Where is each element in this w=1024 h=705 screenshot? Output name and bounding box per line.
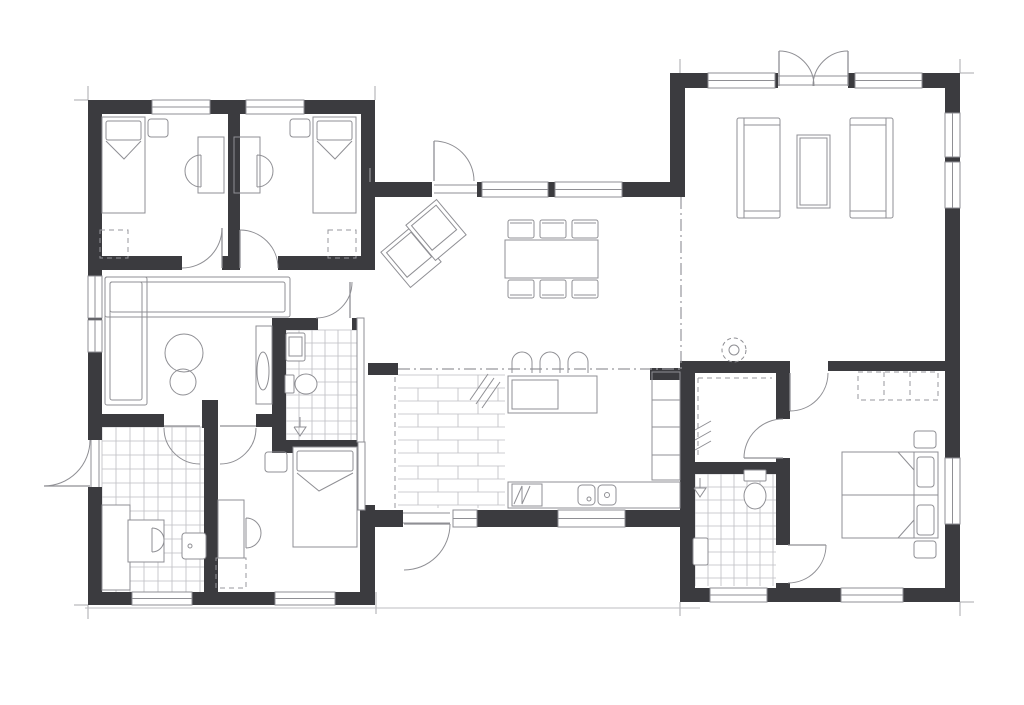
bathroom1-toilet-tank	[285, 375, 294, 393]
window-entry-sidelight-window	[453, 510, 477, 527]
bathroom2-toilet-tank	[744, 470, 766, 481]
window-utility-window	[132, 592, 192, 605]
room-living-room	[685, 88, 945, 368]
wall-east-wall-seg-2	[945, 208, 960, 458]
wall-bedroom3-top-stub	[256, 414, 274, 427]
wall-east-wall-seg-1	[945, 73, 960, 113]
utility-sink	[182, 533, 206, 559]
window-living-room-window-north-1	[708, 73, 775, 88]
wall-east-wing-top-wall-1	[680, 73, 708, 88]
thin-wall-bathroom1-east-wall	[357, 318, 364, 442]
wall-center-top-wall-1	[370, 182, 432, 197]
wall-left-wall-lower	[88, 487, 102, 605]
utility-counter	[102, 505, 130, 590]
wall-top-wall-west-wing	[88, 100, 375, 114]
window-bedroom2-window	[246, 100, 304, 114]
wall-utility-top-wall	[98, 414, 164, 427]
wall-center-bottom-wall-3	[625, 510, 685, 527]
wall-east-wall-sep	[945, 157, 960, 162]
window-dining-window-2	[555, 182, 622, 197]
window-master-suite-window-south-2	[841, 588, 903, 602]
room-walk-in-closet	[695, 373, 776, 462]
bed3-frame	[293, 447, 357, 547]
floor-plan	[0, 0, 1024, 705]
window-master-suite-window-south-1	[710, 588, 767, 602]
wall-master-west-wall-seg-3	[776, 583, 790, 602]
thin-wall-bedroom3-east-wall	[358, 442, 365, 510]
wall-east-wing-top-mullion-2	[848, 73, 855, 88]
wall-master-west-wall-seg-2	[776, 458, 790, 545]
window-bedroom3-window	[275, 592, 335, 605]
window-living-room-window-east-1	[945, 113, 960, 157]
window-master-bedroom-window-east	[945, 458, 960, 524]
window-living-room-window-east-2	[945, 162, 960, 208]
wall-master-west-wall-seg-1	[776, 373, 790, 419]
wall-center-top-mullion-2	[548, 182, 555, 197]
wall-east-wing-left-wall-lower	[680, 368, 695, 602]
wall-bathroom1-west-wall	[272, 318, 286, 453]
window-family-room-window-1	[88, 276, 102, 318]
window-bedroom1-window	[152, 100, 210, 114]
window-living-room-window-north-2	[855, 73, 922, 88]
wall-center-top-mullion-1	[477, 182, 482, 197]
wall-master-suite-north-wall-2	[828, 361, 945, 371]
hall-cabinet-front	[257, 352, 269, 390]
wall-bedrooms-south-wall-2	[278, 256, 375, 270]
room-bedroom-1	[90, 114, 228, 256]
wall-east-wing-left-wall-upper	[670, 73, 685, 197]
window-kitchen-window	[558, 510, 625, 527]
wall-bedrooms-south-wall-stub	[222, 256, 240, 270]
wall-center-bottom-wall-1	[360, 510, 403, 527]
sink-basin-2	[598, 485, 616, 505]
floor-plan-canvas	[0, 0, 1024, 705]
bathroom1-toilet-bowl	[295, 374, 317, 394]
wall-bathroom1-north-wall	[272, 318, 318, 330]
window-family-room-window-2	[88, 320, 102, 352]
wall-center-bottom-wall-2	[477, 510, 558, 527]
kitchen-island	[508, 376, 597, 413]
wall-master-suite-north-wall-1	[680, 361, 790, 373]
wall-east-wing-bottom-wall-3	[903, 588, 960, 602]
bathroom2-toilet-bowl	[744, 483, 766, 509]
sink-basin-1	[578, 485, 595, 505]
bathroom2-sink	[693, 538, 708, 565]
dining-table	[505, 240, 598, 278]
utility-table	[128, 520, 164, 562]
window-dining-window-1	[482, 182, 548, 197]
wall-entry-north-stub	[368, 363, 398, 375]
